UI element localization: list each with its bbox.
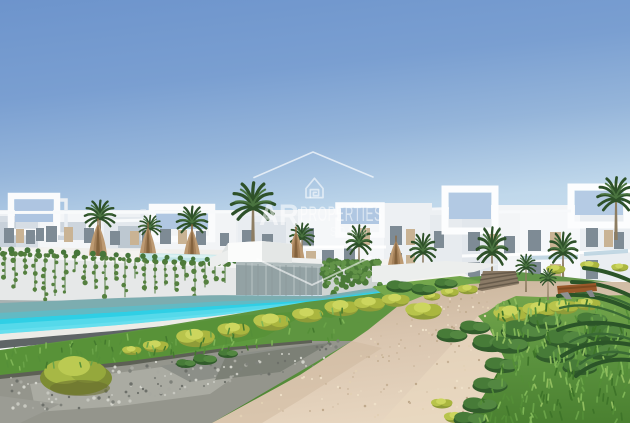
svg-text:PROPERTIES: PROPERTIES <box>300 203 383 226</box>
svg-text:AR: AR <box>259 199 299 232</box>
svg-text:SPAIN: SPAIN <box>330 226 370 240</box>
